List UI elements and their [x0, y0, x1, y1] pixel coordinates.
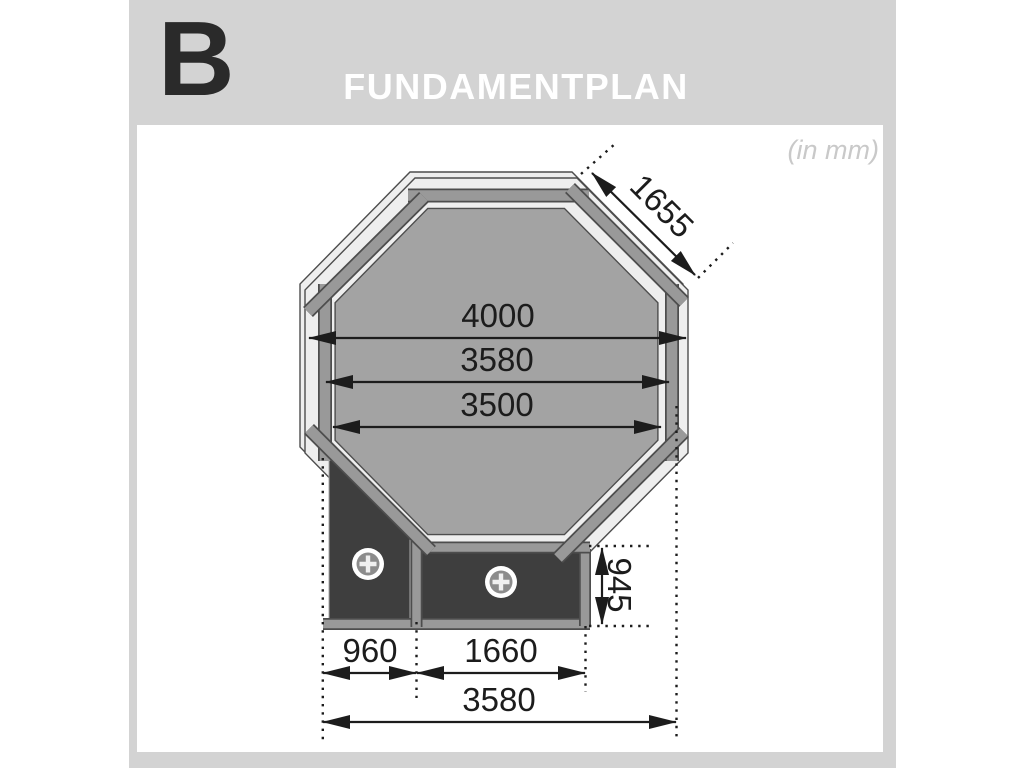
- anchor-marker-left: [352, 548, 384, 580]
- label-bay-right: 1660: [464, 632, 537, 669]
- page-title: FUNDAMENTPLAN: [296, 66, 736, 108]
- label-inner-width: 3500: [460, 386, 533, 423]
- units-note: (in mm): [788, 135, 879, 165]
- foundation-plan-drawing: (in mm): [137, 125, 883, 752]
- label-bottom-total: 3580: [462, 681, 535, 718]
- label-frame-width: 3580: [460, 341, 533, 378]
- extension-1655-upper: [581, 143, 616, 174]
- label-overall-width: 4000: [461, 297, 534, 334]
- section-letter: B: [158, 6, 235, 112]
- label-bay-depth: 945: [601, 557, 638, 612]
- page: B FUNDAMENTPLAN (in mm): [0, 0, 1024, 768]
- label-side-length: 1655: [623, 167, 701, 245]
- extension-1655-lower: [698, 243, 733, 278]
- label-bay-left: 960: [342, 632, 397, 669]
- anchor-marker-right: [485, 566, 517, 598]
